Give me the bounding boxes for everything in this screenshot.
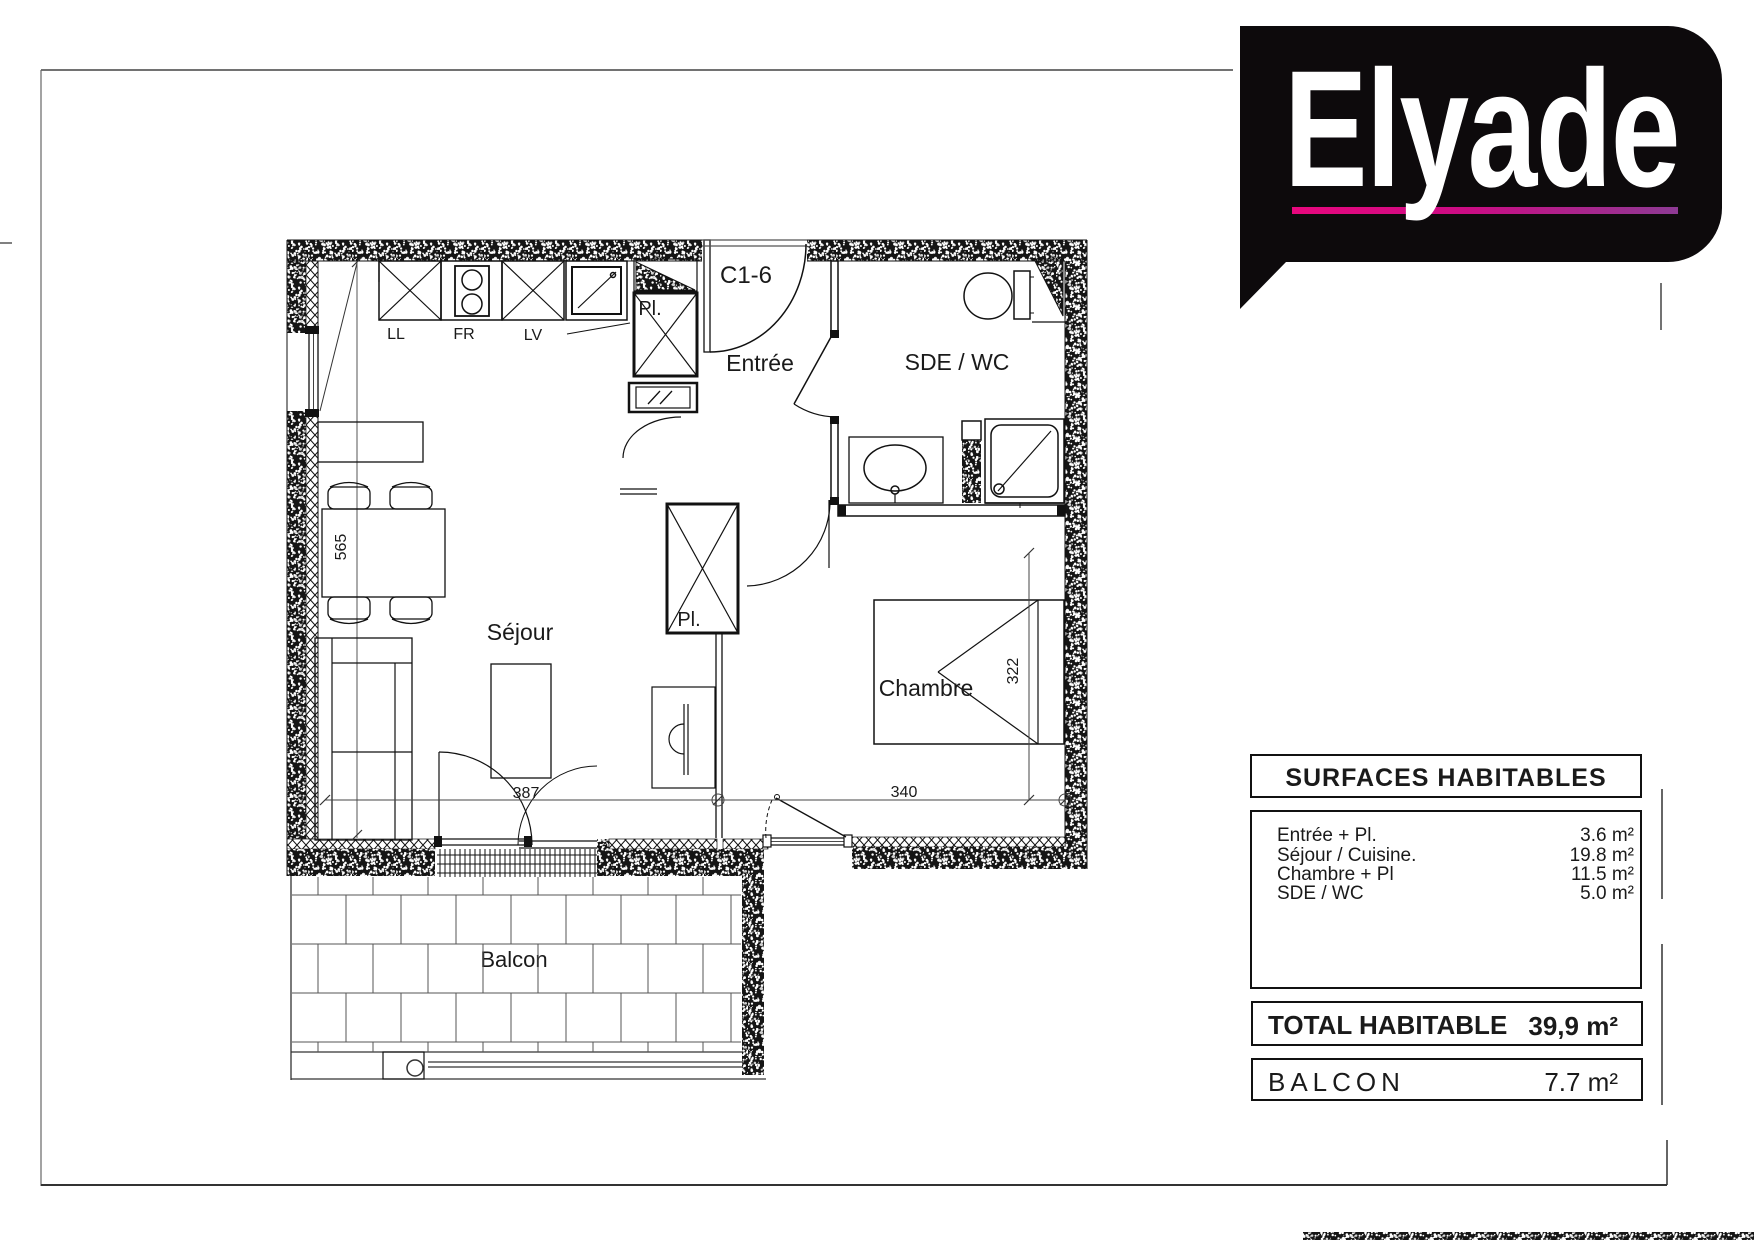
svg-text:11.5 m²: 11.5 m² (1571, 864, 1634, 885)
svg-text:Chambre + Pl: Chambre + Pl (1277, 864, 1394, 885)
svg-text:340: 340 (891, 784, 918, 801)
svg-text:Pl.: Pl. (677, 609, 700, 631)
svg-text:TOTAL HABITABLE: TOTAL HABITABLE (1268, 1010, 1507, 1040)
svg-text:Chambre: Chambre (879, 675, 974, 701)
svg-text:LV: LV (524, 327, 543, 344)
svg-text:39,9 m²: 39,9 m² (1528, 1011, 1618, 1041)
svg-text:Séjour / Cuisine.: Séjour / Cuisine. (1277, 845, 1416, 866)
svg-text:LL: LL (387, 326, 405, 343)
svg-text:SURFACES HABITABLES: SURFACES HABITABLES (1285, 764, 1606, 792)
svg-text:322: 322 (1005, 658, 1022, 685)
svg-text:Entrée + Pl.: Entrée + Pl. (1277, 825, 1377, 846)
svg-text:565: 565 (333, 534, 350, 561)
svg-text:SDE / WC: SDE / WC (905, 349, 1010, 375)
svg-text:Pl.: Pl. (638, 298, 661, 320)
svg-text:FR: FR (453, 326, 474, 343)
svg-text:5.0 m²: 5.0 m² (1580, 883, 1634, 904)
svg-text:Séjour: Séjour (487, 619, 554, 645)
svg-text:387: 387 (513, 785, 540, 802)
svg-text:C1-6: C1-6 (720, 262, 772, 289)
svg-text:7.7 m²: 7.7 m² (1544, 1067, 1618, 1097)
svg-text:Entrée: Entrée (726, 350, 794, 376)
svg-text:19.8 m²: 19.8 m² (1570, 845, 1634, 866)
svg-text:Elyade: Elyade (1284, 37, 1679, 222)
svg-text:BALCON: BALCON (1268, 1067, 1405, 1097)
svg-text:SDE / WC: SDE / WC (1277, 883, 1364, 904)
svg-text:3.6 m²: 3.6 m² (1580, 825, 1634, 846)
